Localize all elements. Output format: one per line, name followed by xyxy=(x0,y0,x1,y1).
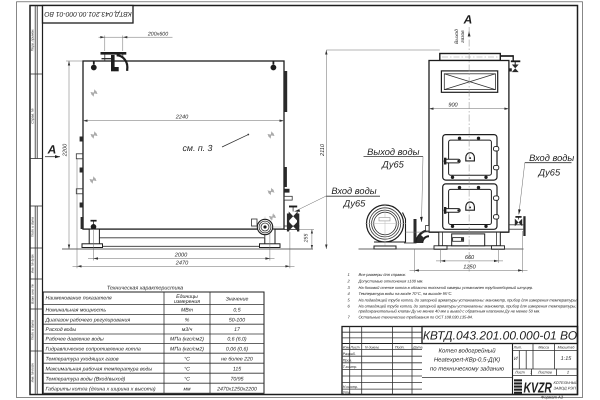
svg-text:50-100: 50-100 xyxy=(229,317,245,323)
svg-text:2200: 2200 xyxy=(63,143,69,157)
svg-text:°С: °С xyxy=(184,366,190,372)
svg-text:Дата: Дата xyxy=(412,345,422,349)
svg-text:Ду65: Ду65 xyxy=(381,160,404,170)
svg-text:Лист: Лист xyxy=(514,371,525,375)
svg-text:255: 255 xyxy=(304,234,310,244)
svg-text:Инв. № подл.: Инв. № подл. xyxy=(31,362,35,382)
svg-text:Температура воды на входе 70°С: Температура воды на входе 70°С, на выход… xyxy=(359,291,453,296)
svg-text:ЗАВОД РЭП: ЗАВОД РЭП xyxy=(554,385,577,390)
svg-text:Диапазон рабочего регулировани: Диапазон рабочего регулирования xyxy=(45,317,131,323)
svg-text:Вход воды: Вход воды xyxy=(529,153,574,163)
svg-text:МВт: МВт xyxy=(181,308,194,314)
svg-text:Максимальная рабочая температу: Максимальная рабочая температура воды xyxy=(46,366,153,372)
svg-text:Взам. инв. №: Взам. инв. № xyxy=(31,284,35,304)
svg-text:Выход воды: Выход воды xyxy=(367,147,419,157)
svg-text:Подп. и дата: Подп. и дата xyxy=(31,217,35,237)
svg-text:МПа (кгс/см2): МПа (кгс/см2) xyxy=(170,346,204,352)
svg-text:Все размеры для справок.: Все размеры для справок. xyxy=(359,272,407,277)
svg-text:660: 660 xyxy=(465,255,475,261)
svg-text:Котел водогрейный: Котел водогрейный xyxy=(438,348,496,355)
svg-text:На подводящей трубе котла, до: На подводящей трубе котла, до запорной а… xyxy=(359,297,578,302)
svg-text:2240: 2240 xyxy=(175,115,189,121)
svg-text:Допустимые отклонения ±100 мм.: Допустимые отклонения ±100 мм. xyxy=(358,279,424,284)
svg-text:°С: °С xyxy=(184,376,190,382)
svg-text:°С: °С xyxy=(184,356,190,362)
svg-text:КОТЕЛЬНЫЙ: КОТЕЛЬНЫЙ xyxy=(554,380,579,385)
svg-text:газов: газов xyxy=(461,30,466,43)
svg-text:Утв.: Утв. xyxy=(343,391,351,395)
svg-text:Лист: Лист xyxy=(349,345,359,349)
svg-text:Инв. № дубл.: Инв. № дубл. xyxy=(31,254,35,274)
svg-text:измерения: измерения xyxy=(174,299,200,305)
svg-text:м3/ч: м3/ч xyxy=(182,327,193,333)
svg-text:Расход воды: Расход воды xyxy=(46,327,77,333)
svg-text:Ду65: Ду65 xyxy=(343,198,366,208)
svg-text:Heatexpert-КВр-0,5-Д(К): Heatexpert-КВр-0,5-Д(К) xyxy=(434,357,500,364)
svg-text:На боковой стенке котла в обла: На боковой стенке котла в области топочн… xyxy=(359,285,534,290)
svg-text:1:15: 1:15 xyxy=(561,356,573,362)
svg-text:КВТД.043.201.00.000-01 ВО: КВТД.043.201.00.000-01 ВО xyxy=(44,10,132,17)
svg-text:900: 900 xyxy=(448,103,458,109)
svg-text:0,6 (6,0): 0,6 (6,0) xyxy=(227,337,247,343)
svg-text:И: И xyxy=(514,356,518,362)
svg-text:1: 1 xyxy=(530,371,532,375)
svg-text:см. п. 3: см. п. 3 xyxy=(183,143,213,153)
svg-text:предохранительный клапан Ду н: предохранительный клапан Ду не менее 40 … xyxy=(359,308,541,313)
svg-text:Номинальная мощность: Номинальная мощность xyxy=(46,308,107,314)
svg-text:Листов: Листов xyxy=(537,371,552,375)
svg-text:по техническому заданию: по техническому заданию xyxy=(430,366,505,373)
svg-text:Справ. №: Справ. № xyxy=(31,108,35,124)
svg-text:Н.контр.: Н.контр. xyxy=(343,385,358,389)
svg-text:мм: мм xyxy=(183,386,191,392)
svg-text:Изм: Изм xyxy=(343,345,350,349)
svg-text:Температура уходящих газов: Температура уходящих газов xyxy=(46,356,119,362)
svg-text:N докум.: N докум. xyxy=(365,345,380,349)
svg-text:Техническая характеристика: Техническая характеристика xyxy=(107,285,183,291)
svg-text:Ду65: Ду65 xyxy=(537,167,560,177)
svg-text:2110: 2110 xyxy=(320,143,326,157)
svg-text:1250: 1250 xyxy=(463,264,476,270)
svg-text:Выход: Выход xyxy=(454,29,460,44)
svg-text:Масштаб: Масштаб xyxy=(558,346,576,350)
svg-text:Формат А3: Формат А3 xyxy=(541,394,564,399)
svg-text:МПа (кгс/см2): МПа (кгс/см2) xyxy=(170,337,204,343)
svg-text:Температура воды (Вход/выход): Температура воды (Вход/выход) xyxy=(46,376,126,382)
svg-text:Подп.: Подп. xyxy=(395,345,405,349)
svg-text:не более 220: не более 220 xyxy=(221,356,253,362)
svg-text:0,06 (0,6): 0,06 (0,6) xyxy=(226,346,248,352)
svg-text:Разраб.: Разраб. xyxy=(343,352,356,356)
svg-text:А: А xyxy=(463,13,473,27)
svg-text:Подп. и дата: Подп. и дата xyxy=(31,320,35,340)
svg-text:Гидравлическое сопротивление к: Гидравлическое сопротивление котла xyxy=(46,346,141,352)
svg-text:Лит.: Лит. xyxy=(513,346,522,350)
svg-text:2470х1250х2200: 2470х1250х2200 xyxy=(216,386,257,392)
svg-text:Т.контр.: Т.контр. xyxy=(343,365,358,369)
svg-text:Рабочее давление воды: Рабочее давление воды xyxy=(46,337,104,343)
svg-text:Значение: Значение xyxy=(226,297,249,303)
svg-text:Вход воды: Вход воды xyxy=(331,186,376,196)
svg-text:Масса: Масса xyxy=(538,346,549,350)
svg-text:1: 1 xyxy=(348,272,350,277)
svg-text:2000: 2000 xyxy=(174,253,188,259)
svg-text:70/95: 70/95 xyxy=(231,376,244,382)
svg-text:Перв. примен.: Перв. примен. xyxy=(31,29,35,52)
svg-text:А: А xyxy=(47,143,57,157)
svg-text:2470: 2470 xyxy=(175,260,189,266)
svg-text:КВТД.043.201.00.000-01 ВО: КВТД.043.201.00.000-01 ВО xyxy=(423,329,577,343)
svg-text:Наименование показателя: Наименование показателя xyxy=(46,296,112,302)
svg-text:200х600: 200х600 xyxy=(147,31,168,37)
svg-text:%: % xyxy=(185,317,190,323)
svg-text:Габариты котла (длина х ширина: Габариты котла (длина х ширина х высота) xyxy=(46,386,156,392)
svg-text:115: 115 xyxy=(233,366,241,372)
svg-text:0,5: 0,5 xyxy=(233,308,240,314)
svg-text:Пров.: Пров. xyxy=(343,359,352,363)
svg-text:Остальные технические требован: Остальные технические требования по ОСТ … xyxy=(359,314,473,319)
